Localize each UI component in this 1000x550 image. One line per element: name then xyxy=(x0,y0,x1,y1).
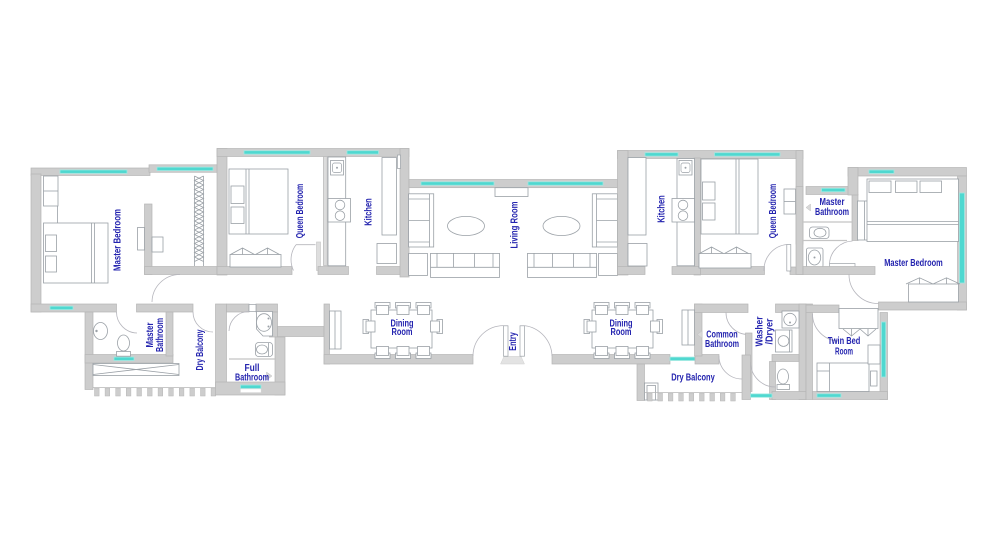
svg-text:Queen Bedroom: Queen Bedroom xyxy=(768,184,779,239)
svg-text:Dry Balcony: Dry Balcony xyxy=(671,373,715,384)
svg-text:Kitchen: Kitchen xyxy=(657,195,668,223)
svg-text:Master Bedroom: Master Bedroom xyxy=(113,209,124,271)
svg-text:Room: Room xyxy=(611,327,632,338)
svg-text:/Dryer: /Dryer xyxy=(765,318,776,344)
svg-text:Queen Bedroom: Queen Bedroom xyxy=(295,184,306,239)
svg-text:Entry: Entry xyxy=(508,332,519,351)
svg-text:Twin Bed: Twin Bed xyxy=(828,336,861,347)
svg-text:Kitchen: Kitchen xyxy=(364,198,375,226)
svg-text:Room: Room xyxy=(835,347,853,358)
svg-text:Room: Room xyxy=(392,327,413,338)
svg-text:Bathroom: Bathroom xyxy=(705,339,739,350)
svg-text:Master Bedroom: Master Bedroom xyxy=(884,258,943,269)
svg-text:Bathroom: Bathroom xyxy=(235,373,269,384)
svg-text:Bathroom: Bathroom xyxy=(155,318,166,352)
svg-text:Dry Balcony: Dry Balcony xyxy=(195,329,206,370)
svg-text:Living Room: Living Room xyxy=(510,201,521,248)
svg-text:Bathroom: Bathroom xyxy=(815,207,849,218)
